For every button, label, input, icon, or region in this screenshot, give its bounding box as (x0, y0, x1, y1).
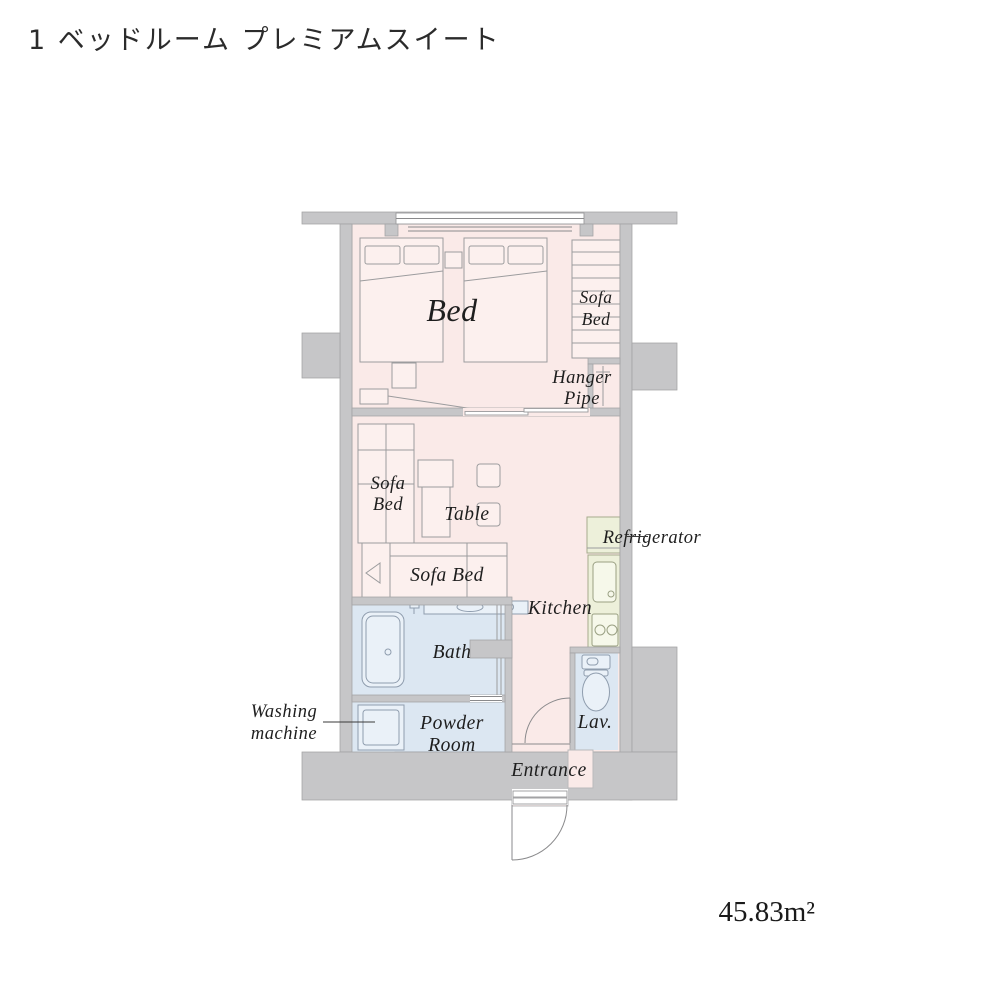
sofa-bed-horizontal-label: Sofa Bed (410, 565, 484, 586)
floor-plan: Bed Sofa Bed Hanger Pipe Sofa Bed Table … (0, 0, 1001, 1001)
sofa-bed-living-label-2: Bed (373, 495, 404, 515)
stove-icon (592, 614, 618, 646)
powder-room-label-2: Room (427, 735, 476, 756)
sofa-bed-bedroom-label-1: Sofa (579, 287, 612, 307)
entrance-door-sill (512, 789, 568, 805)
luggage-rack-icon (360, 389, 388, 404)
bed-label: Bed (426, 292, 478, 328)
floor-area: 45.83m² (640, 896, 815, 929)
hanger-pipe-label-2: Pipe (563, 389, 600, 409)
sofa-bed-living-label-1: Sofa (371, 474, 406, 494)
floor-plan-page: 1 ベッドルーム プレミアムスイート (0, 0, 1001, 1001)
bath-door-gap (470, 695, 502, 702)
powder-room-label-1: Powder (419, 713, 484, 734)
sofa-bed-bedroom-label-2: Bed (582, 309, 611, 329)
sliding-door-bedroom (463, 408, 590, 416)
washing-machine-label-1: Washing (251, 702, 318, 722)
kitchen-label: Kitchen (527, 598, 592, 619)
entrance-label: Entrance (510, 760, 586, 781)
kitchen-sink-icon (593, 562, 616, 602)
refrigerator-label: Refrigerator (602, 528, 702, 548)
bathtub-icon (362, 612, 404, 687)
bedside-table-icon (445, 252, 462, 268)
washing-machine-label-2: machine (251, 724, 317, 744)
tv-board-icon (392, 363, 416, 388)
washing-machine-icon (358, 705, 404, 750)
lav-label: Lav. (577, 712, 613, 733)
hanger-pipe-label-1: Hanger (551, 368, 612, 388)
table-label: Table (444, 504, 489, 525)
entrance-door-swing (512, 805, 567, 860)
toilet-icon (582, 655, 610, 711)
bath-label: Bath (433, 642, 472, 663)
